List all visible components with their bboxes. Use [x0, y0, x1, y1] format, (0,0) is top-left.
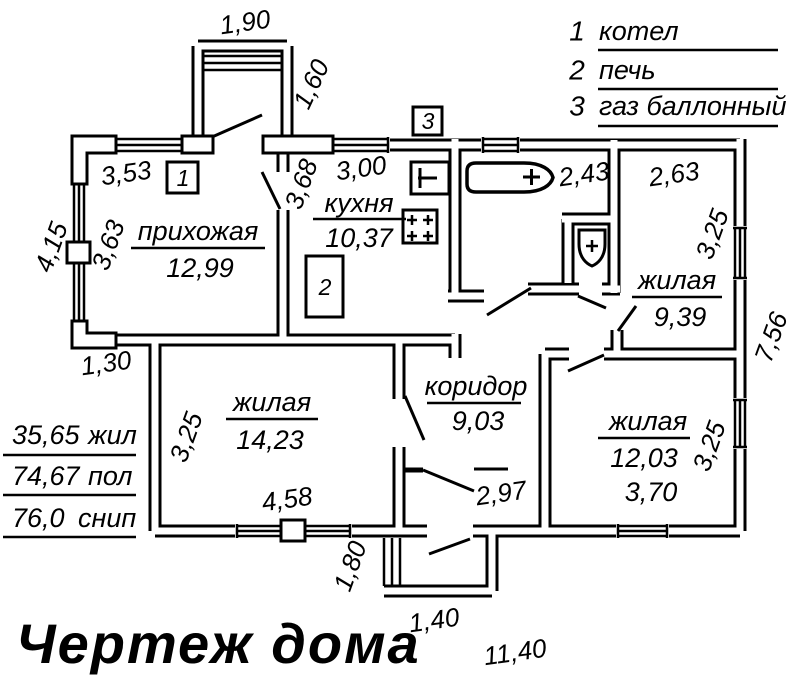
stove-burners-icon [403, 210, 437, 243]
porch-jamb-right [263, 136, 333, 153]
area-table-row-1-label: жил [87, 420, 137, 450]
room-living-se-area: 12,03 [610, 443, 678, 473]
porch-steps-bottom [384, 538, 400, 586]
window-bottom-left-a [235, 522, 284, 539]
dim-entry: 2,97 [473, 474, 530, 511]
door-porch-top-leaf [212, 115, 262, 137]
window-right-upper [732, 226, 749, 280]
room-kitchen-name: кухня [324, 188, 393, 218]
room-kitchen-area: 10,37 [325, 223, 394, 253]
door-living-ne-leaf [618, 306, 636, 331]
floorplan-svg: 1 2 3 1 котел 2 печь 3 газ баллонный при… [0, 0, 800, 680]
room-living-w-name: жилая [232, 387, 311, 417]
marker-boiler-label: 1 [177, 165, 190, 191]
door-kitchen-leaf [262, 172, 280, 209]
dim-step: 1,30 [79, 345, 134, 382]
window-bottom-right [616, 522, 669, 539]
legend-item-3-num: 3 [569, 91, 585, 122]
legend-item-2-label: печь [599, 55, 656, 85]
legend-item-2-num: 2 [568, 55, 585, 86]
room-corridor-area: 9,03 [452, 406, 505, 436]
bathtub-icon [467, 163, 553, 192]
dim-living-se-height: 3,25 [686, 417, 732, 475]
dim-hallway-window: 3,53 [99, 155, 154, 192]
room-living-ne-name: жилая [637, 265, 716, 295]
room-hallway-area: 12,99 [166, 253, 234, 283]
dim-left-inner: 3,63 [85, 216, 131, 274]
legend: 1 котел 2 печь 3 газ баллонный [568, 16, 786, 127]
door-entry-inner-leaf [423, 470, 474, 491]
walls-inner [72, 46, 740, 591]
dim-bath-width: 2,43 [556, 156, 612, 193]
dim-living-ne-height: 3,25 [689, 205, 735, 263]
room-living-se-name: жилая [608, 406, 687, 436]
legend-item-1-label: котел [599, 16, 679, 46]
dim-total-width: 11,40 [482, 633, 549, 672]
blueprint-canvas: 1 2 3 1 котел 2 печь 3 газ баллонный при… [0, 0, 800, 680]
area-table-row-2-value: 74,67 [12, 461, 81, 491]
dim-porch-bottom-depth: 1,80 [327, 537, 373, 595]
area-table-row-3-value: 76,0 [12, 503, 65, 533]
room-living-w-area: 14,23 [236, 425, 304, 455]
dim-living-w-window: 4,58 [260, 481, 315, 518]
area-table-row-2-label: пол [88, 461, 133, 491]
dim-porch-top-width: 1,90 [218, 4, 273, 41]
room-living-ne-area: 9,39 [654, 302, 707, 332]
door-bathroom-leaf [487, 288, 531, 315]
legend-item-1-num: 1 [569, 16, 585, 47]
dim-living-ne-width: 2,63 [646, 156, 702, 193]
page-title: Чертеж дома [16, 612, 421, 675]
dim-living-w-height: 3,25 [163, 408, 209, 466]
dim-kitchen-window: 3,00 [334, 150, 389, 187]
window-mullion-bottom [281, 520, 305, 541]
room-hallway-name: прихожая [138, 216, 259, 246]
dim-porch-top-depth: 1,60 [287, 54, 336, 113]
window-right-lower [732, 398, 749, 449]
window-bottom-left-b [303, 522, 352, 539]
window-left-upper [71, 181, 87, 245]
window-bath-top [481, 136, 520, 154]
door-entry-porch-leaf [429, 539, 470, 554]
porch-jamb-left [182, 136, 213, 153]
door-living-se-leaf [568, 355, 604, 371]
window-hallway-top [113, 136, 184, 154]
corner-block-mid-left [72, 321, 116, 348]
walls-outer [72, 46, 740, 591]
area-table-row-3-label: снип [78, 503, 136, 533]
window-left-lower [71, 260, 87, 324]
marker-gas-label: 3 [422, 108, 435, 134]
dim-right-outer: 7,56 [748, 308, 794, 366]
marker-stove-label: 2 [318, 274, 332, 300]
legend-item-3-label: газ баллонный [599, 91, 786, 121]
area-table-row-1-value: 35,65 [12, 420, 81, 450]
door-toilet-leaf [578, 296, 606, 308]
porch-steps-top [204, 56, 281, 70]
room-corridor-name: коридор [425, 371, 528, 401]
door-living-w-leaf [405, 396, 424, 440]
area-table: 35,65 жил 74,67 пол 76,0 снип [3, 420, 137, 537]
room-living-se-width: 3,70 [625, 477, 678, 507]
